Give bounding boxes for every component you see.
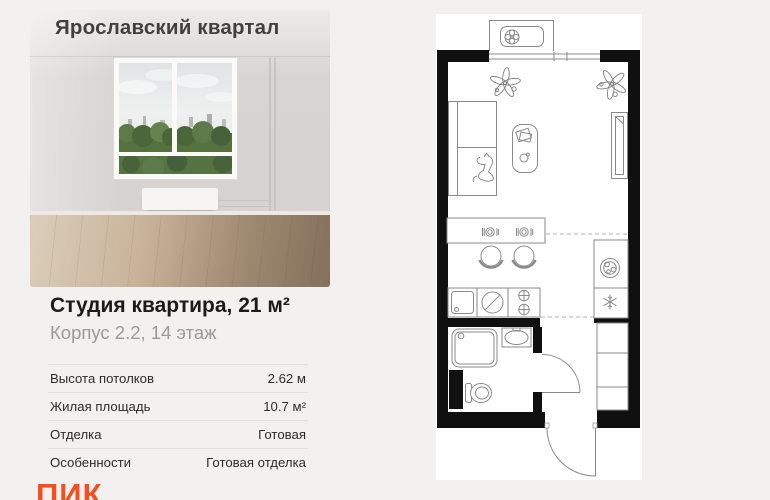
toilet-icon bbox=[466, 384, 492, 403]
bar-counter-icon bbox=[447, 218, 545, 243]
floorplan bbox=[0, 0, 770, 500]
washbasin-icon bbox=[502, 328, 531, 347]
bed-icon bbox=[449, 102, 497, 196]
kitchen-counter bbox=[448, 288, 540, 317]
wardrobe-icon bbox=[612, 113, 628, 179]
shower-icon bbox=[452, 329, 497, 367]
window-icon bbox=[489, 51, 600, 61]
laundry-column bbox=[594, 240, 628, 318]
coffee-table-icon bbox=[513, 125, 538, 173]
listing-card: Ярославский квартал Студия квартира, 21 … bbox=[0, 0, 770, 500]
closet-icon bbox=[597, 323, 628, 410]
